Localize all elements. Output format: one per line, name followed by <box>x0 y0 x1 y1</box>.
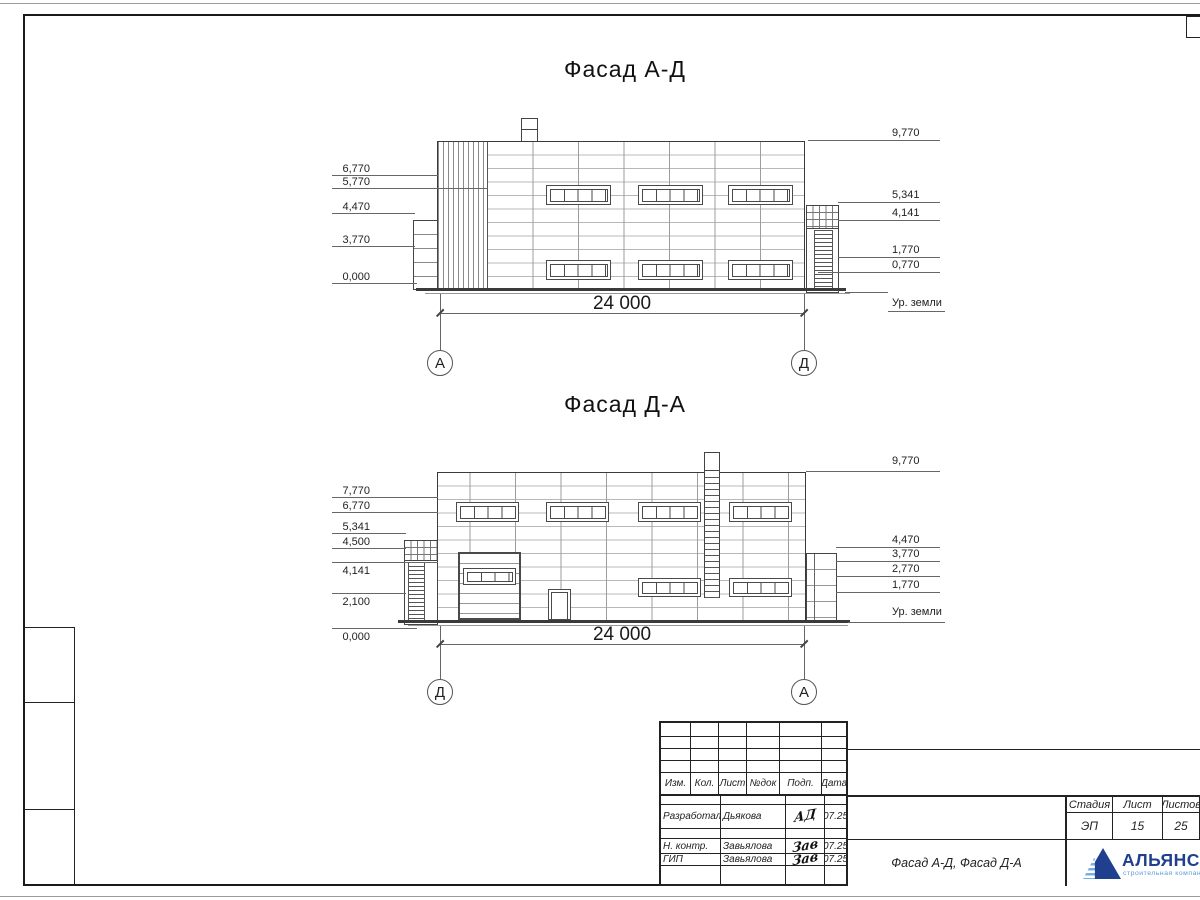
elevation-label: 2,770 <box>892 563 920 575</box>
leader-line <box>845 292 888 293</box>
col-header: Дата <box>822 773 846 794</box>
facade1-ground-line <box>416 288 846 291</box>
facade2-chimney-ladder <box>704 452 720 598</box>
sheet-top-edge <box>0 3 1200 4</box>
leader-line <box>332 497 438 498</box>
leader-line <box>838 257 940 258</box>
entrance-door <box>548 589 571 620</box>
leader-line <box>806 471 940 472</box>
date-cell: 07.25 <box>825 839 846 854</box>
window <box>638 185 703 205</box>
leader-line <box>332 593 406 594</box>
leader-line <box>332 246 415 247</box>
leader-line <box>838 220 940 221</box>
titleblock-empty-cell <box>848 797 1067 839</box>
date-cell: 07.25 <box>825 805 846 829</box>
axis-circle: Д <box>791 350 817 376</box>
axis-circle: А <box>791 679 817 705</box>
facade2-span-dimension: 24 000 <box>480 624 764 646</box>
date-cell: 07.25 <box>825 854 846 866</box>
sheets-header: Листов <box>1163 797 1200 813</box>
facade2-left-stair-tower <box>404 540 438 625</box>
signature: Зав <box>786 854 825 866</box>
col-header: Лист <box>719 773 747 794</box>
window <box>729 502 792 522</box>
stage-sheet-table: Стадия Лист Листов ЭП 15 25 <box>1067 797 1200 839</box>
facade1-louver-panel <box>438 142 488 288</box>
elevation-label: 0,770 <box>892 259 920 271</box>
leader-line <box>332 512 438 513</box>
leader-line <box>332 213 415 214</box>
elevation-label: 6,770 <box>328 163 370 175</box>
leader-line <box>848 622 945 623</box>
elevation-label: 2,100 <box>328 596 370 608</box>
elevation-label: 9,770 <box>892 127 920 139</box>
window <box>546 185 611 205</box>
window <box>728 185 793 205</box>
window <box>729 578 792 597</box>
window <box>638 578 701 597</box>
signature: АД <box>786 805 825 829</box>
axis-circle: А <box>427 350 453 376</box>
elevation-label: 6,770 <box>328 500 370 512</box>
ground-level-label: Ур. земли <box>892 606 942 618</box>
col-header: Изм. <box>661 773 691 794</box>
elevation-label: 9,770 <box>892 455 920 467</box>
ground-level-label: Ур. земли <box>892 297 942 309</box>
sheet-header: Лист <box>1113 797 1163 813</box>
leader-line <box>836 561 940 562</box>
facade1-chimney <box>521 118 538 143</box>
window <box>546 502 609 522</box>
leader-line <box>808 140 940 141</box>
logo-name: АЛЬЯНС <box>1122 850 1200 871</box>
frame-corner-box <box>1186 16 1200 38</box>
leader-line <box>818 272 940 273</box>
facade2-building <box>437 472 806 621</box>
name-cell: Завьялова <box>721 839 786 854</box>
stage-value: ЭП <box>1067 813 1113 839</box>
window <box>546 260 611 280</box>
titleblock-signature-table: Разработал Дьякова АД 07.25 Н. контр. За… <box>659 796 848 886</box>
window <box>456 502 519 522</box>
elevation-label: 4,141 <box>892 207 920 219</box>
facade1-span-dimension: 24 000 <box>480 293 764 315</box>
window <box>728 260 793 280</box>
leader-line <box>332 533 406 534</box>
role-cell: Н. контр. <box>661 839 721 854</box>
facade2-right-annex <box>806 553 837 621</box>
sheets-value: 25 <box>1163 813 1200 839</box>
leader-line <box>836 592 940 593</box>
leader-line <box>332 628 417 629</box>
sheet-value: 15 <box>1113 813 1163 839</box>
elevation-label: 4,470 <box>328 201 370 213</box>
filing-strip-line <box>74 627 75 884</box>
drawing-sheet: { "sheet": { "f1": { "title": "Фасад А-Д… <box>0 0 1200 900</box>
sheet-bottom-edge <box>0 896 1200 897</box>
role-cell: Разработал <box>661 805 721 829</box>
role-cell: ГИП <box>661 854 721 866</box>
titleblock-drawing-title: Фасад А-Д, Фасад Д-А <box>848 839 1067 886</box>
name-cell: Дьякова <box>721 805 786 829</box>
frame-left <box>23 14 25 886</box>
col-header: Кол. <box>691 773 719 794</box>
elevation-label: 0,000 <box>328 631 370 643</box>
elevation-label: 1,770 <box>892 244 920 256</box>
facade2-title: Фасад Д-А <box>440 391 810 418</box>
col-header: №док <box>747 773 780 794</box>
facade1-left-annex <box>413 220 438 290</box>
elevation-label: 5,341 <box>892 189 920 201</box>
col-header: Подп. <box>780 773 822 794</box>
window <box>638 260 703 280</box>
elevation-label: 3,770 <box>892 548 920 560</box>
elevation-label: 3,770 <box>328 234 370 246</box>
window <box>638 502 701 522</box>
axis-circle: Д <box>427 679 453 705</box>
elevation-label: 1,770 <box>892 579 920 591</box>
elevation-label: 4,470 <box>892 534 920 546</box>
elevation-label: 0,000 <box>328 271 370 283</box>
frame-top <box>23 14 1200 16</box>
leader-line <box>836 576 940 577</box>
logo-subtitle: строительная компания <box>1123 870 1200 877</box>
ladder <box>408 562 425 623</box>
gate-window-band <box>463 568 516 585</box>
stage-header: Стадия <box>1067 797 1113 813</box>
elevation-label: 7,770 <box>328 485 370 497</box>
titleblock-doc-designation <box>848 750 1200 797</box>
leader-line <box>332 283 417 284</box>
titleblock-doc-designation-top <box>848 721 1200 750</box>
elevation-label: 5,770 <box>328 176 370 188</box>
company-logo: АЛЬЯНС строительная компания <box>1067 839 1200 886</box>
sectional-gate <box>458 552 521 620</box>
leader-line <box>332 562 438 563</box>
elevation-label: 4,141 <box>328 565 370 577</box>
titleblock-revision-table: Изм. Кол. Лист №док Подп. Дата <box>659 721 848 796</box>
facade1-building <box>437 141 805 289</box>
elevation-label: 5,341 <box>328 521 370 533</box>
facade1-right-stair-tower <box>806 205 839 293</box>
elevation-label: 4,500 <box>328 536 370 548</box>
ladder <box>814 230 833 291</box>
leader-line <box>332 188 488 189</box>
facade2-ground-line <box>398 620 850 623</box>
facade1-title: Фасад А-Д <box>440 56 810 83</box>
leader-line <box>836 547 940 548</box>
signature: Зав <box>786 839 825 854</box>
name-cell: Завьялова <box>721 854 786 866</box>
leader-line <box>838 202 940 203</box>
leader-line <box>332 548 406 549</box>
